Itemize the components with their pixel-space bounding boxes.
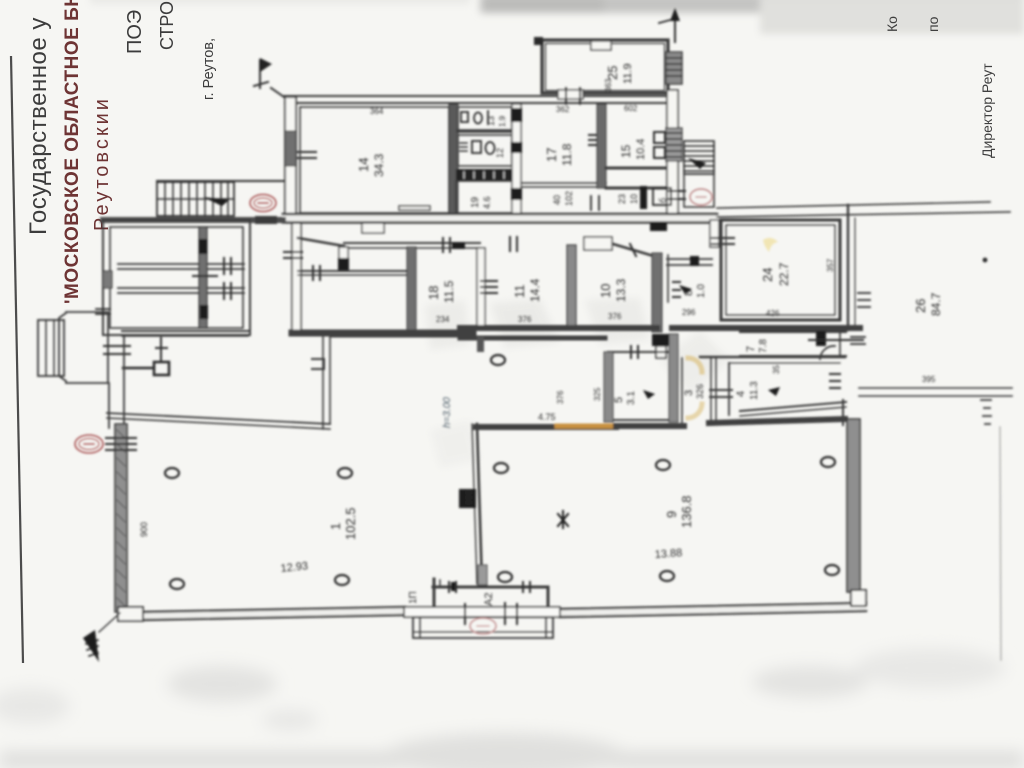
- svg-text:17: 17: [544, 148, 559, 162]
- svg-text:Ко: Ко: [884, 16, 900, 32]
- svg-text:по: по: [925, 16, 941, 32]
- svg-text:25: 25: [605, 66, 620, 80]
- svg-text:1П: 1П: [408, 591, 419, 604]
- svg-text:35: 35: [772, 365, 781, 374]
- svg-text:23: 23: [617, 194, 627, 204]
- svg-text:325: 325: [593, 387, 602, 401]
- svg-text:19: 19: [470, 196, 481, 208]
- svg-text:40: 40: [552, 195, 562, 205]
- svg-text:376: 376: [556, 390, 565, 404]
- svg-text:10: 10: [598, 284, 613, 298]
- svg-text:Реутовскии: Реутовскии: [91, 96, 113, 231]
- svg-text:1.0: 1.0: [696, 284, 707, 298]
- svg-text:26: 26: [913, 299, 928, 313]
- svg-text:376: 376: [608, 312, 622, 321]
- svg-text:234: 234: [436, 315, 450, 324]
- svg-text:11: 11: [512, 285, 527, 299]
- svg-text:900: 900: [464, 490, 474, 505]
- svg-text:3.1: 3.1: [626, 391, 637, 405]
- svg-text:г. Реутов,: г. Реутов,: [201, 38, 217, 100]
- svg-text:22.7: 22.7: [777, 262, 791, 286]
- svg-text:14.4: 14.4: [528, 278, 542, 302]
- svg-text:СТРО: СТРО: [157, 1, 177, 50]
- svg-text:364: 364: [370, 107, 384, 116]
- svg-text:11.5: 11.5: [442, 280, 456, 303]
- svg-text:602: 602: [624, 104, 638, 113]
- svg-text:3: 3: [683, 390, 695, 396]
- svg-text:136.8: 136.8: [679, 495, 694, 528]
- svg-text:5: 5: [613, 397, 625, 403]
- svg-text:h=3.00: h=3.00: [442, 397, 453, 428]
- svg-text:4: 4: [735, 391, 747, 397]
- svg-text:13: 13: [486, 116, 496, 126]
- svg-text:102.5: 102.5: [343, 507, 358, 540]
- svg-text:11.3: 11.3: [749, 381, 760, 400]
- svg-text:11.9: 11.9: [622, 63, 634, 84]
- svg-text:ПОЭ: ПОЭ: [124, 10, 146, 54]
- svg-text:Директор Реут: Директор Реут: [979, 63, 995, 158]
- svg-text:1.9: 1.9: [498, 115, 507, 127]
- svg-text:4.75: 4.75: [538, 412, 556, 422]
- svg-text:326: 326: [695, 384, 705, 399]
- svg-text:24: 24: [760, 268, 775, 282]
- svg-text:395: 395: [922, 375, 936, 384]
- svg-text:10.4: 10.4: [635, 139, 647, 160]
- svg-text:12: 12: [495, 148, 505, 158]
- svg-text:363: 363: [604, 78, 613, 92]
- svg-text:9: 9: [664, 511, 679, 518]
- svg-text:376: 376: [518, 315, 532, 324]
- svg-text:426: 426: [766, 309, 780, 318]
- svg-text:1: 1: [328, 523, 343, 530]
- svg-text:11.8: 11.8: [560, 143, 574, 166]
- svg-text:10: 10: [629, 194, 639, 204]
- svg-text:'МОСКОВСКОЕ ОБЛАСТНОЕ БЮРО: 'МОСКОВСКОЕ ОБЛАСТНОЕ БЮРО: [62, 0, 83, 304]
- svg-text:4.6: 4.6: [482, 196, 492, 209]
- svg-text:14: 14: [356, 158, 371, 172]
- svg-text:357: 357: [826, 258, 835, 272]
- svg-text:7: 7: [745, 346, 757, 352]
- svg-text:б: б: [658, 198, 668, 203]
- svg-text:15: 15: [619, 144, 633, 158]
- svg-text:13.88: 13.88: [654, 547, 682, 561]
- svg-text:Государственное у: Государственное у: [25, 17, 52, 235]
- svg-text:362: 362: [556, 105, 570, 114]
- svg-text:900: 900: [139, 522, 149, 537]
- svg-text:34.3: 34.3: [372, 153, 386, 177]
- svg-text:13.3: 13.3: [614, 278, 628, 302]
- svg-text:84.7: 84.7: [929, 292, 943, 316]
- svg-text:102: 102: [564, 191, 574, 206]
- svg-text:296: 296: [682, 308, 696, 317]
- svg-text:7.8: 7.8: [758, 339, 769, 353]
- svg-text:А2: А2: [483, 593, 495, 606]
- svg-text:18: 18: [426, 286, 441, 300]
